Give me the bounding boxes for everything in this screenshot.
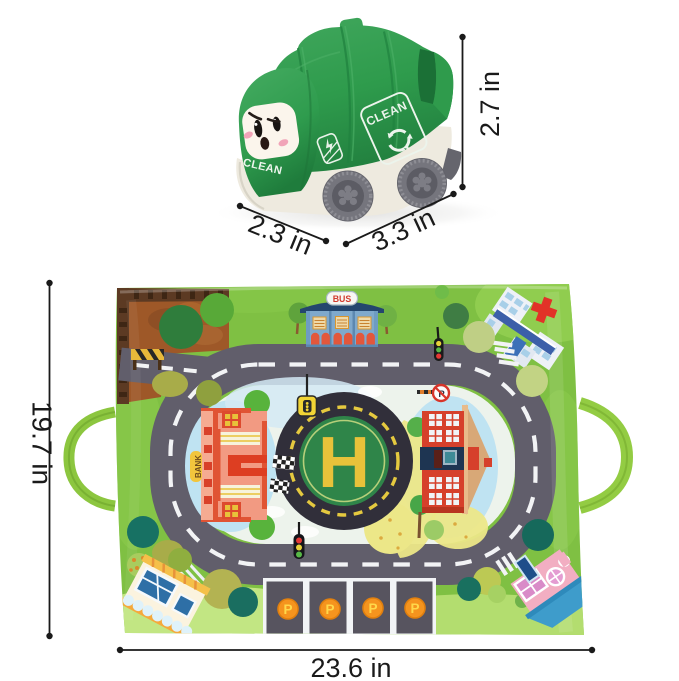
svg-text:P: P <box>368 601 377 616</box>
svg-text:P: P <box>283 602 292 617</box>
svg-text:19.7 in: 19.7 in <box>27 401 58 485</box>
svg-text:23.6 in: 23.6 in <box>310 653 391 681</box>
svg-text:BANK: BANK <box>194 455 203 478</box>
svg-text:H: H <box>318 423 370 503</box>
svg-text:BUS: BUS <box>333 294 352 304</box>
svg-text:P: P <box>325 602 334 617</box>
svg-text:P: P <box>410 601 419 616</box>
svg-text:2.7 in: 2.7 in <box>475 71 505 137</box>
